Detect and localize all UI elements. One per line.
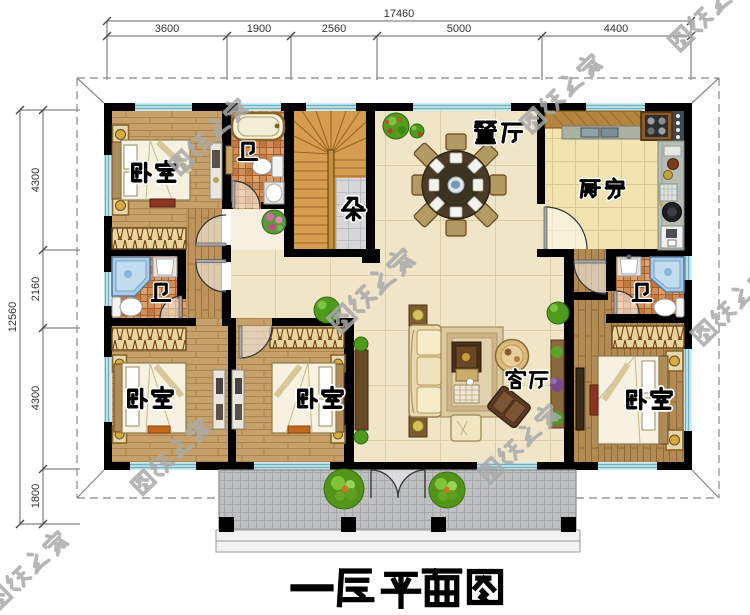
svg-text:12560: 12560 (7, 302, 19, 333)
svg-text:2160: 2160 (30, 277, 42, 301)
svg-text:2560: 2560 (322, 23, 346, 35)
svg-text:1800: 1800 (30, 484, 42, 508)
svg-text:4300: 4300 (30, 168, 42, 192)
svg-text:4400: 4400 (604, 23, 628, 35)
svg-text:3600: 3600 (155, 23, 179, 35)
svg-text:1900: 1900 (247, 23, 271, 35)
svg-text:17460: 17460 (384, 8, 415, 20)
svg-text:4300: 4300 (30, 386, 42, 410)
svg-text:5000: 5000 (447, 23, 471, 35)
